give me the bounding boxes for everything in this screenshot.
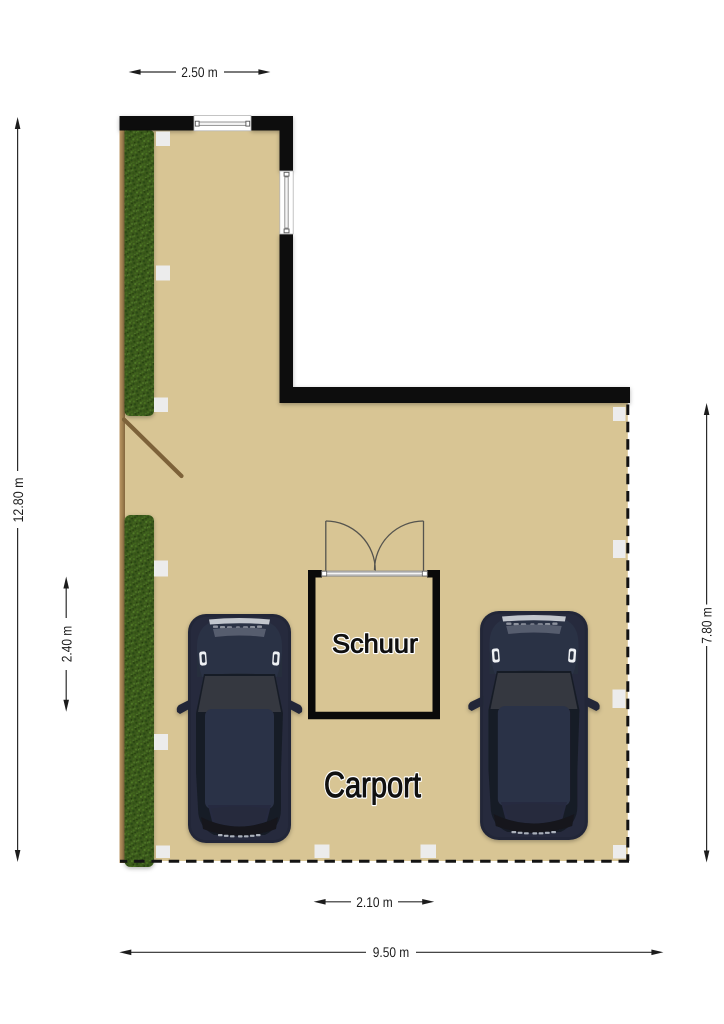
svg-text:12.80 m: 12.80 m [10, 478, 26, 523]
svg-text:Schuur: Schuur [332, 629, 418, 659]
svg-text:9.50 m: 9.50 m [373, 944, 410, 960]
svg-text:2.40 m: 2.40 m [59, 626, 75, 663]
svg-text:2.50 m: 2.50 m [181, 64, 218, 80]
svg-text:Carport: Carport [324, 764, 421, 805]
svg-text:7.80 m: 7.80 m [699, 607, 715, 644]
svg-text:2.10 m: 2.10 m [356, 894, 393, 910]
